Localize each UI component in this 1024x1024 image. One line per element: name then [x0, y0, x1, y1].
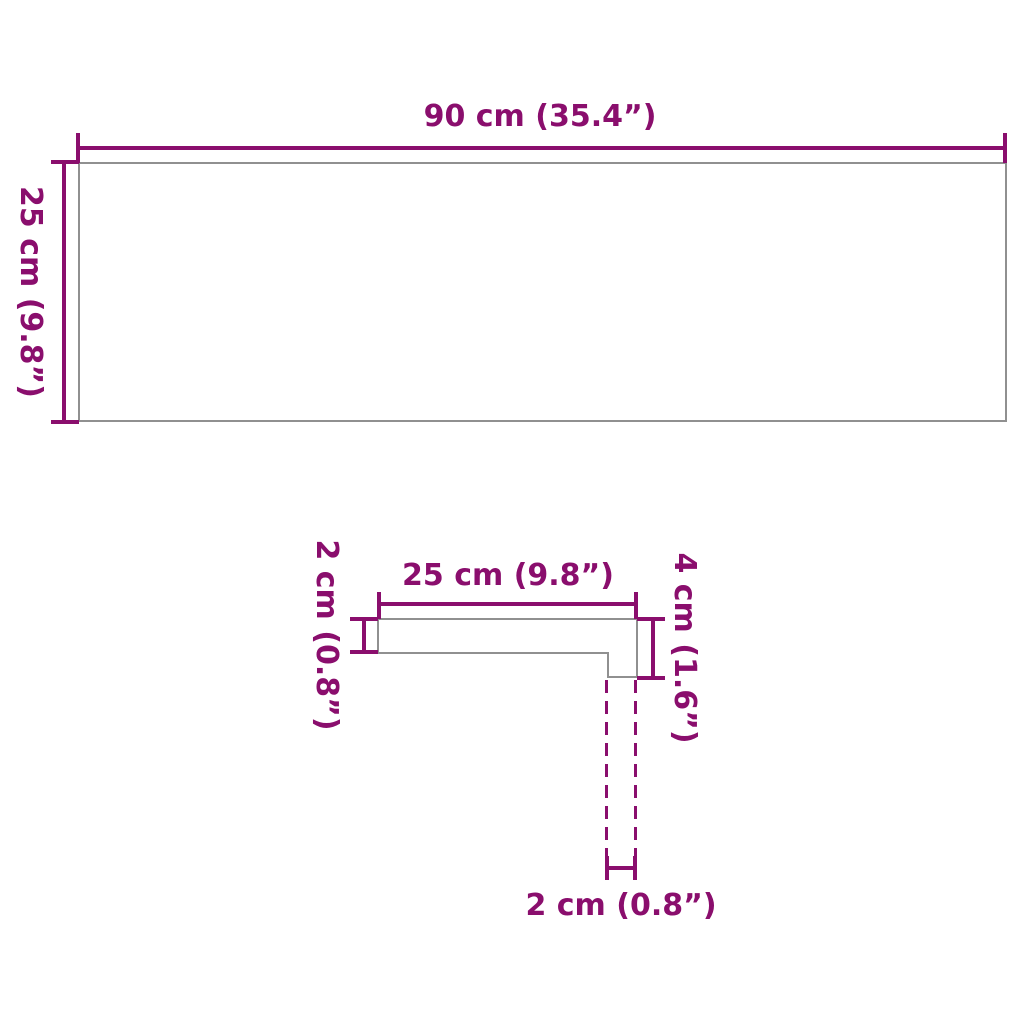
- width-dimension-left-tick: [76, 133, 80, 163]
- thickness-top-tick: [350, 617, 378, 621]
- profile-width-dimension-line: [377, 602, 638, 606]
- dimension-diagram: 90 cm (35.4”) 25 cm (9.8”) 25 cm (9.8”) …: [0, 0, 1024, 1024]
- nose-width-right-tick: [633, 856, 637, 880]
- nose-height-bottom-tick: [637, 676, 665, 680]
- width-dimension-label: 90 cm (35.4”): [424, 102, 657, 132]
- nose-height-top-tick: [637, 617, 665, 621]
- thickness-dimension-label: 2 cm (0.8”): [311, 539, 341, 730]
- nose-width-projection-right: [634, 680, 637, 878]
- height-dimension-label: 25 cm (9.8”): [15, 186, 45, 398]
- width-dimension-right-tick: [1003, 133, 1007, 163]
- nose-width-left-tick: [605, 856, 609, 880]
- nose-width-projection-left: [605, 680, 608, 878]
- thickness-dimension-line: [362, 619, 366, 654]
- profile-width-left-tick: [377, 592, 381, 619]
- profile-width-dimension-label: 25 cm (9.8”): [402, 561, 614, 591]
- nose-height-dimension-label: 4 cm (1.6”): [669, 552, 699, 743]
- board-outline: [78, 162, 1007, 422]
- thickness-bottom-tick: [350, 650, 378, 654]
- nose-height-dimension-line: [651, 619, 655, 680]
- profile-width-right-tick: [634, 592, 638, 619]
- nose-width-dimension-label: 2 cm (0.8”): [525, 891, 716, 921]
- height-dimension-top-tick: [51, 160, 79, 164]
- width-dimension-line: [76, 146, 1007, 150]
- profile-outline: [376, 617, 640, 680]
- height-dimension-bottom-tick: [51, 420, 79, 424]
- height-dimension-line: [62, 160, 66, 424]
